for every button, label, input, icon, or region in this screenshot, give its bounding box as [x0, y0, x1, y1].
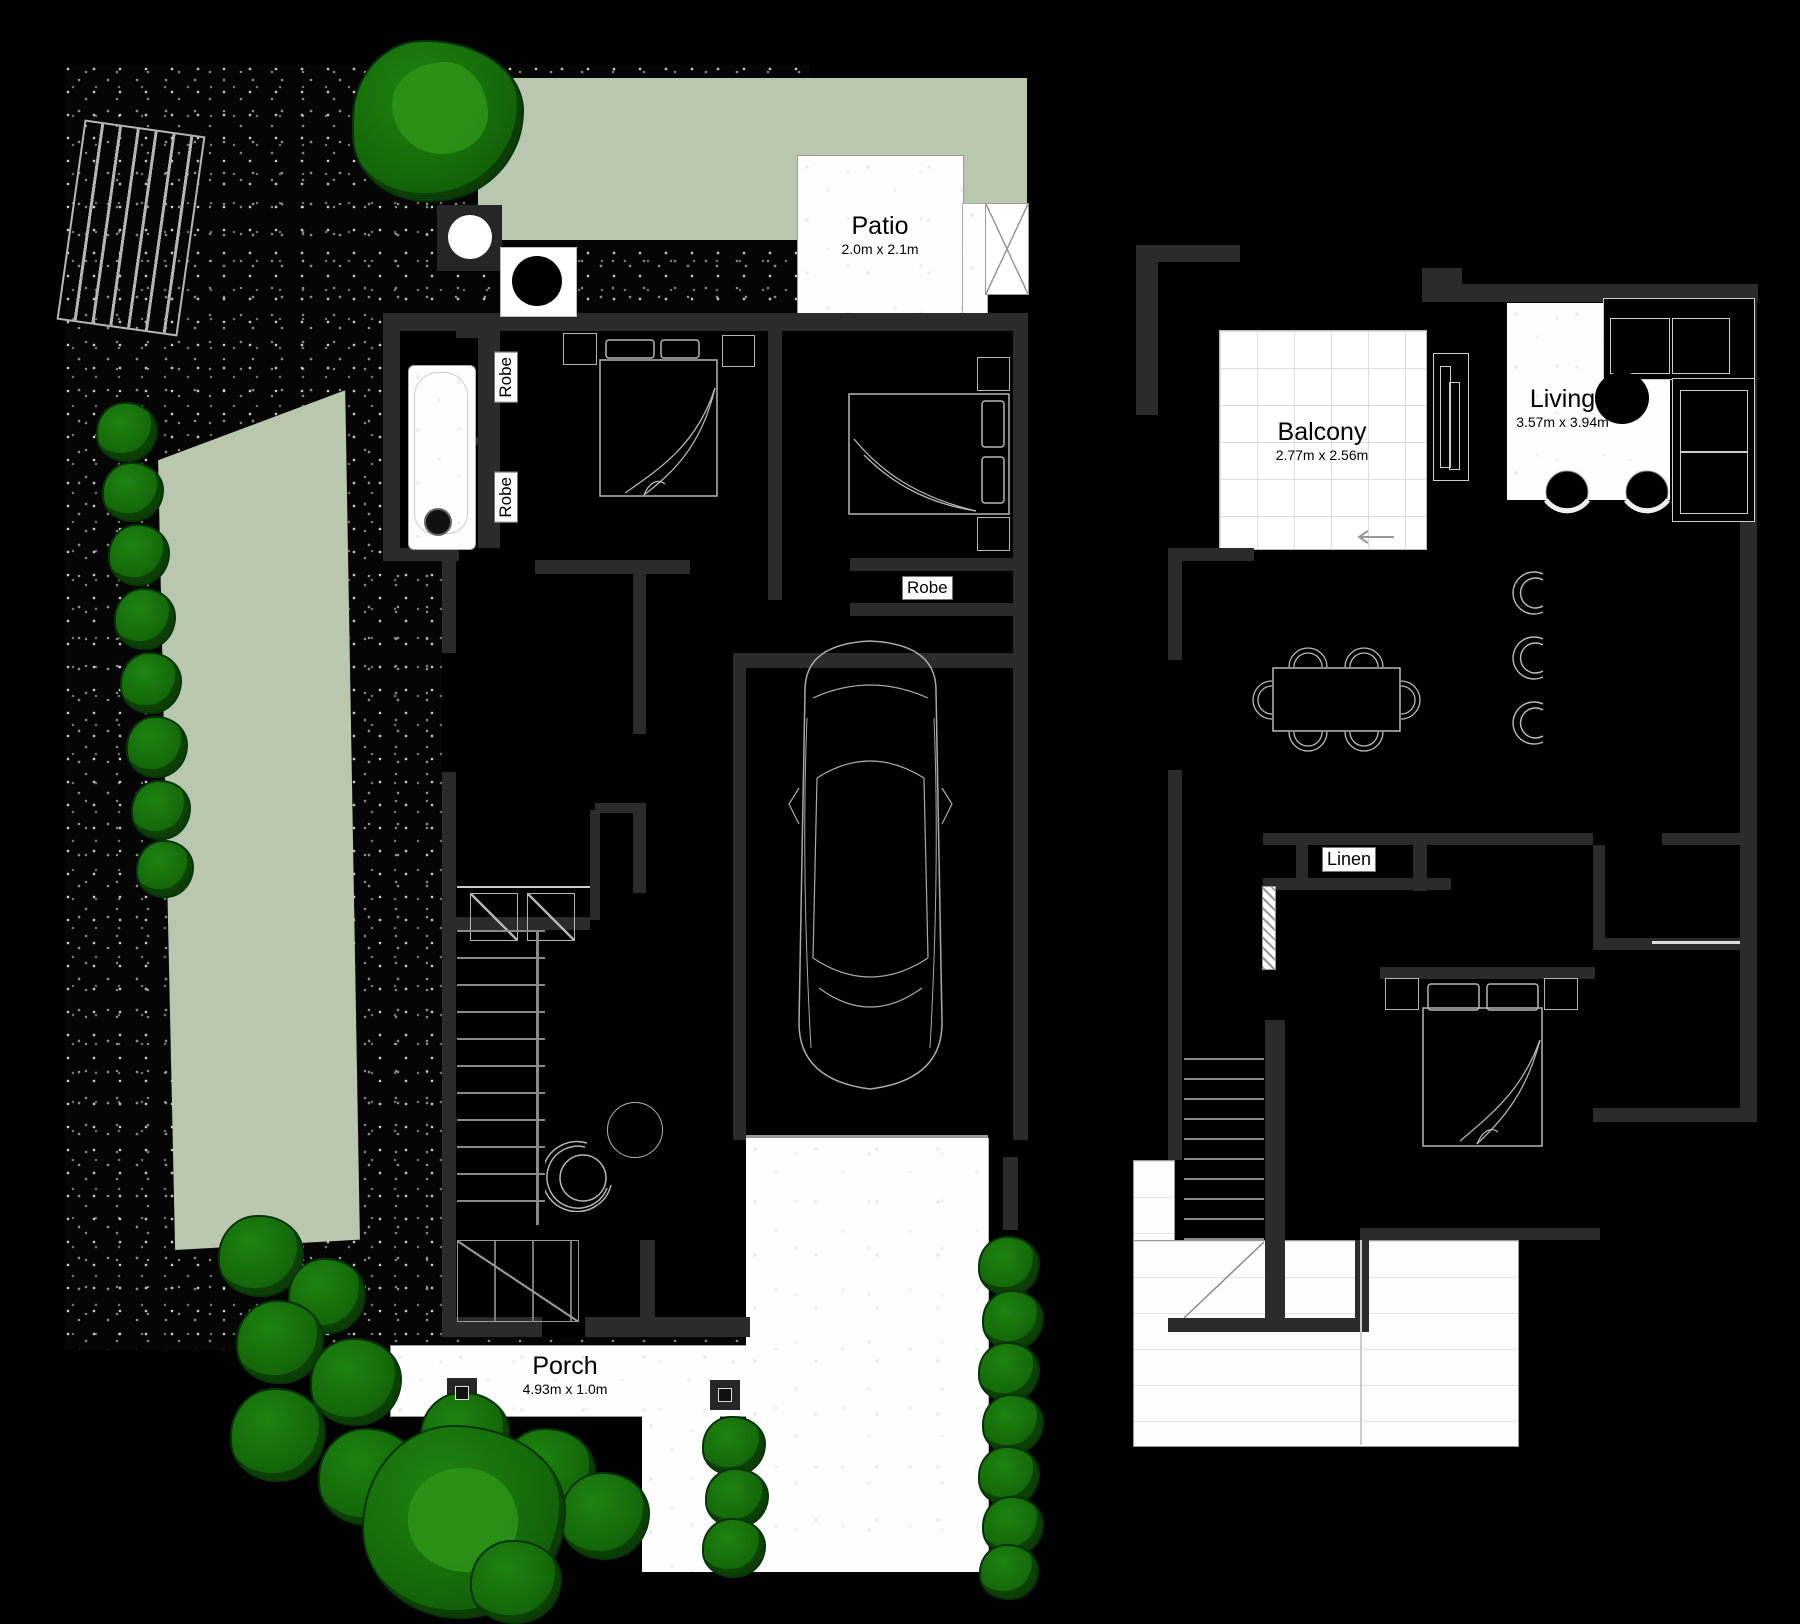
- room-name: Balcony: [1222, 418, 1422, 447]
- window-line: [1652, 941, 1740, 944]
- basin-icon: [512, 256, 562, 306]
- wall: [850, 558, 1013, 571]
- linen-label: Linen: [1322, 847, 1376, 872]
- room-dims: 2.0m x 2.1m: [800, 241, 960, 257]
- wall: [1263, 878, 1414, 890]
- bed-icon: [848, 393, 1010, 515]
- bed-icon: [599, 336, 719, 498]
- garage-door-line: [746, 1135, 988, 1138]
- stair-diagonal: [1184, 1240, 1264, 1320]
- wall: [1413, 833, 1427, 891]
- room-name: Living: [1505, 385, 1620, 414]
- wall: [456, 330, 478, 338]
- sofa-cushion: [1680, 390, 1748, 452]
- armchair-icon: [1538, 466, 1596, 526]
- bush-icon: [96, 402, 158, 462]
- bush-icon: [979, 1544, 1039, 1600]
- car-icon: [783, 628, 958, 1106]
- sofa-cushion: [1680, 452, 1748, 514]
- bedside-table: [977, 517, 1010, 551]
- wall: [383, 313, 400, 560]
- dining-set-icon: [1245, 640, 1435, 770]
- bush-icon: [470, 1540, 562, 1624]
- room-name: Porch: [420, 1352, 710, 1381]
- bush-icon: [978, 1236, 1040, 1296]
- wall: [1265, 1020, 1285, 1332]
- wall: [768, 330, 782, 600]
- bush-icon: [136, 840, 194, 898]
- armchair-icon: [1618, 466, 1676, 526]
- bedside-table: [977, 357, 1010, 391]
- porch-label: Porch 4.93m x 1.0m: [420, 1352, 710, 1397]
- room-dims: 3.57m x 3.94m: [1505, 414, 1620, 430]
- armchair-icon: [545, 1138, 619, 1212]
- bush-icon: [131, 780, 191, 840]
- wall: [633, 574, 646, 734]
- bush-icon: [108, 524, 170, 586]
- wall: [1427, 833, 1593, 845]
- wall: [1168, 770, 1182, 1160]
- room-dims: 4.93m x 1.0m: [420, 1381, 710, 1397]
- floorplan-canvas: Patio 2.0m x 2.1m: [0, 0, 1800, 1624]
- sofa-cushion: [1672, 318, 1730, 374]
- wall: [590, 810, 600, 920]
- bush-icon: [560, 1472, 650, 1560]
- wall: [633, 803, 646, 893]
- wall: [535, 560, 690, 574]
- bedside-table: [1385, 978, 1419, 1010]
- bush-icon: [702, 1416, 766, 1476]
- balcony-label: Balcony 2.77m x 2.56m: [1222, 418, 1422, 463]
- sofa-cushion: [1610, 318, 1670, 374]
- robe-text: Robe: [496, 357, 515, 398]
- robe-text: Robe: [496, 477, 515, 518]
- ac-unit-icon: [985, 203, 1029, 295]
- linen-text: Linen: [1327, 849, 1371, 869]
- understair-cupboard: [457, 1240, 579, 1322]
- bush-icon: [230, 1388, 326, 1482]
- wall: [1263, 833, 1414, 845]
- wall: [733, 668, 746, 1140]
- bbq-burner-icon: [448, 215, 492, 259]
- staircase-upper: [1184, 1058, 1264, 1240]
- bush-icon: [310, 1338, 402, 1426]
- bar-stools-icon: [1505, 562, 1557, 758]
- wall: [442, 772, 456, 1337]
- robe-label: Robe: [494, 352, 518, 403]
- wardrobe-box: [563, 333, 597, 365]
- robe-label: Robe: [902, 576, 953, 600]
- laundry-bench-line: [457, 886, 590, 888]
- bush-icon: [114, 588, 176, 650]
- bedside-table: [1544, 978, 1578, 1010]
- wall: [1003, 1157, 1018, 1230]
- wall: [585, 1317, 750, 1337]
- staircase: [457, 930, 545, 1225]
- wall: [1136, 245, 1158, 415]
- bed-icon: [1422, 978, 1544, 1148]
- wall: [1168, 548, 1182, 660]
- wall: [1593, 938, 1740, 950]
- stair-stringer: [536, 930, 539, 1225]
- driveway: [746, 1138, 989, 1572]
- room-dims: 2.77m x 2.56m: [1222, 447, 1422, 463]
- bush-icon: [120, 652, 182, 714]
- bush-icon: [102, 462, 164, 522]
- bush-icon: [702, 1518, 766, 1578]
- tree-core-icon: [392, 62, 488, 154]
- sliding-door-leaf: [1449, 382, 1460, 470]
- robe-text: Robe: [907, 578, 948, 597]
- deck-divider-line: [1360, 1240, 1362, 1445]
- roof-deck: [1133, 1160, 1175, 1246]
- wall: [1013, 330, 1028, 1140]
- patio-label: Patio 2.0m x 2.1m: [800, 212, 960, 257]
- wall: [1662, 833, 1740, 845]
- porch-post-cap: [718, 1388, 732, 1402]
- wall: [1593, 845, 1605, 945]
- void-railing-hatch: [1262, 886, 1276, 970]
- bush-icon: [126, 716, 188, 778]
- wall: [850, 603, 1013, 616]
- wall: [1593, 1108, 1757, 1122]
- bush-icon: [978, 1342, 1040, 1402]
- bath-drain-icon: [424, 508, 452, 536]
- robe-label: Robe: [494, 472, 518, 523]
- bush-icon: [982, 1290, 1044, 1350]
- living-label: Living 3.57m x 3.94m: [1505, 385, 1620, 430]
- bush-icon: [982, 1394, 1044, 1454]
- wall: [442, 555, 456, 653]
- wall: [1360, 1228, 1600, 1240]
- room-name: Patio: [800, 212, 960, 241]
- entry-arrow-icon: [1352, 528, 1398, 546]
- wall: [1427, 878, 1451, 890]
- bedside-table: [722, 335, 755, 367]
